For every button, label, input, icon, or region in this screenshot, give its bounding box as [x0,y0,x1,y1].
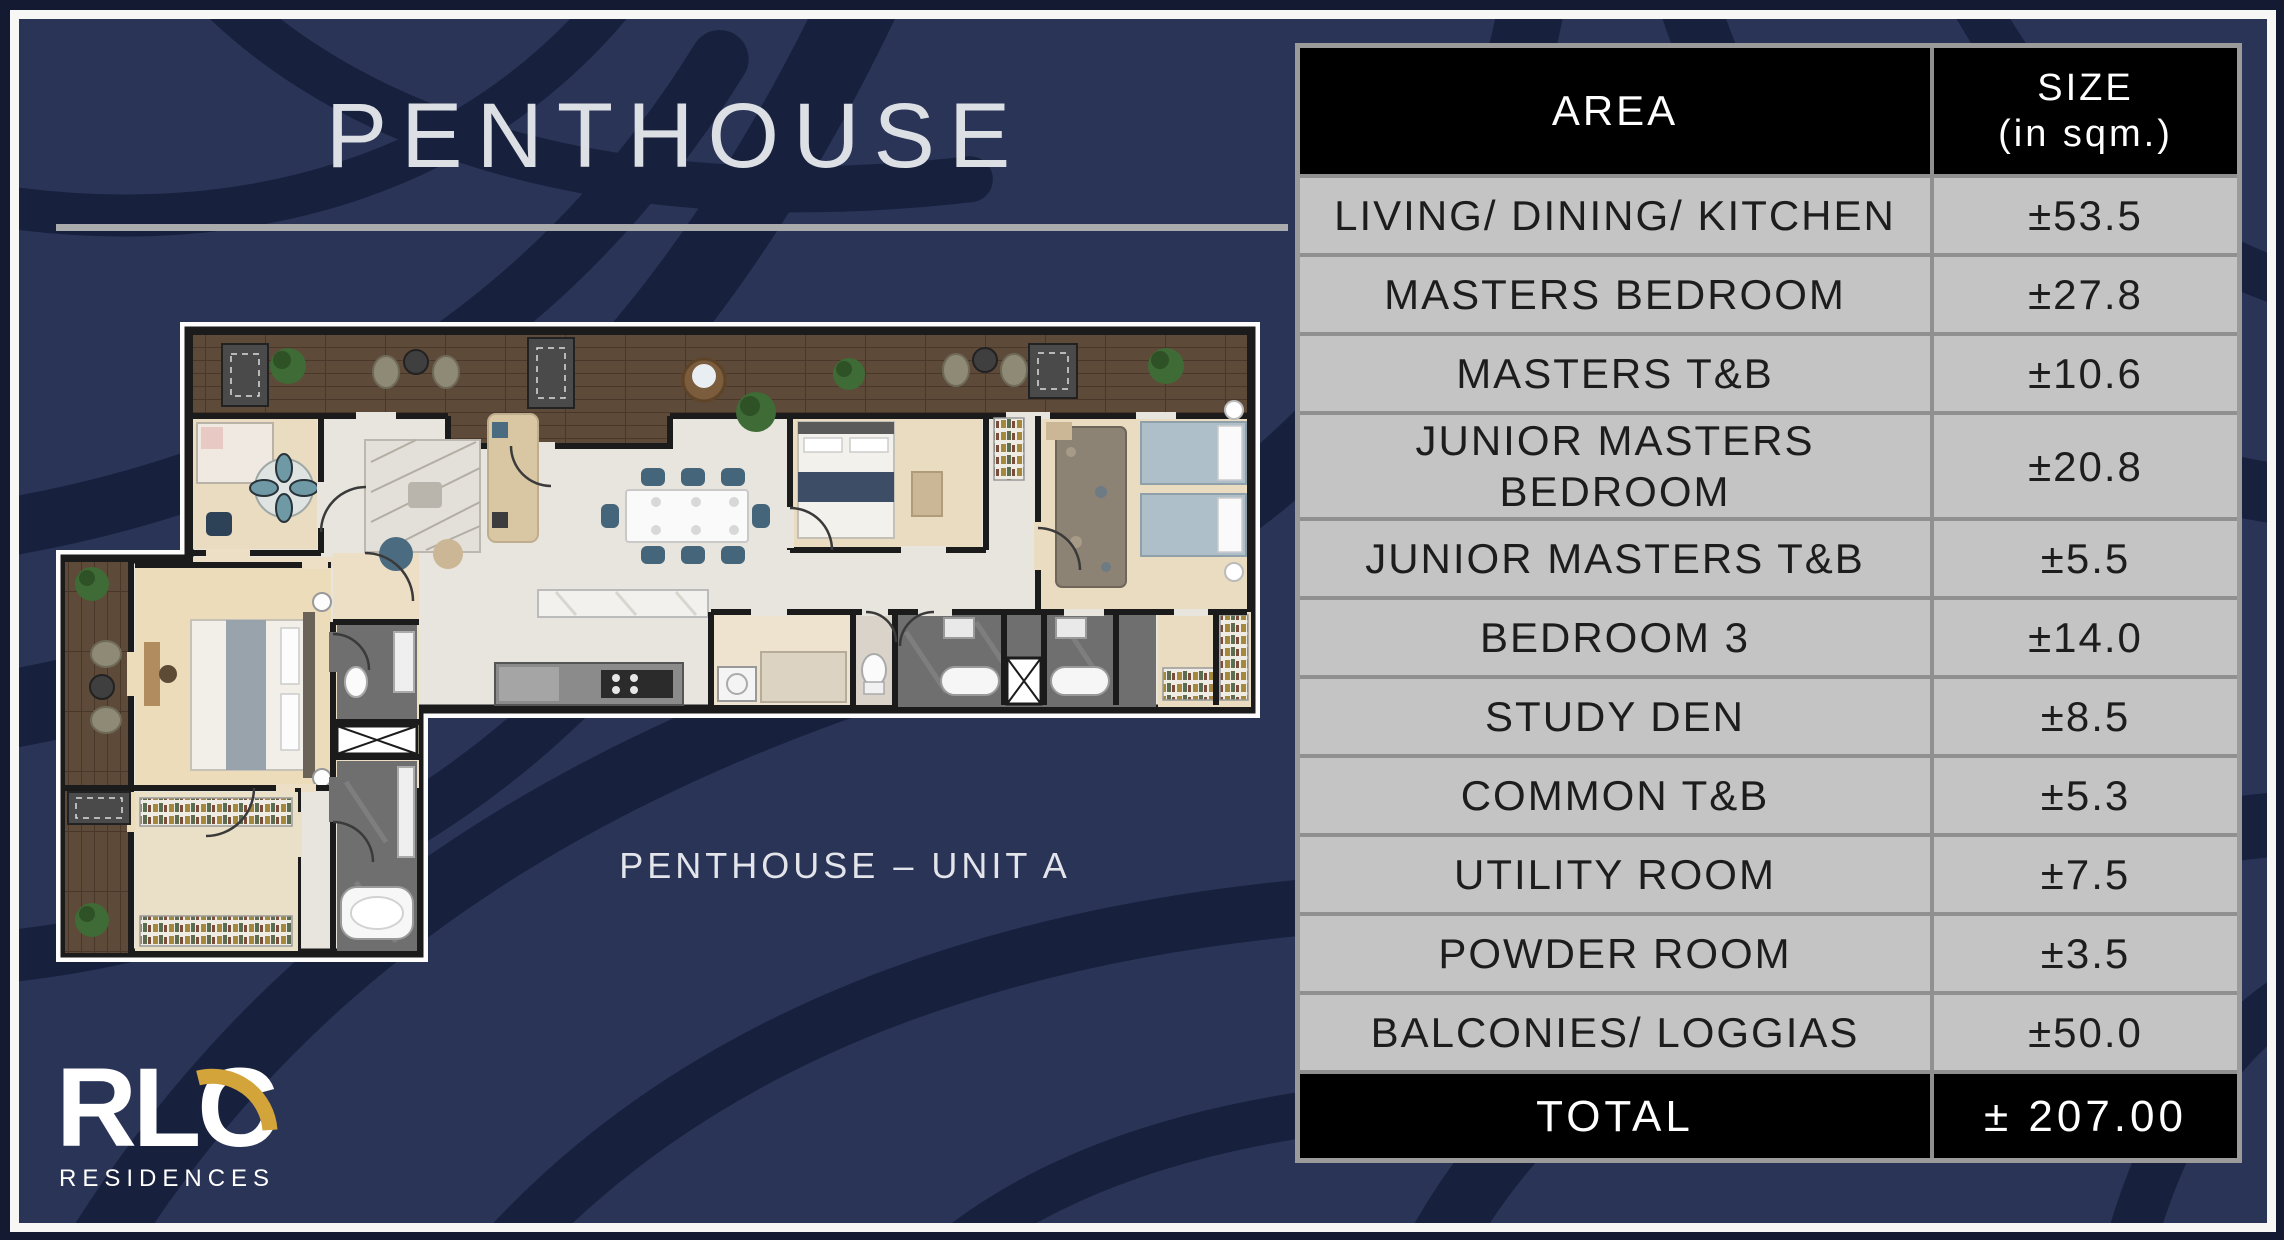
table-total-value: ± 207.00 [1934,1074,2237,1158]
table-header-area: AREA [1300,48,1930,174]
title-underline [56,224,1288,231]
table-row: STUDY DEN ±8.5 [1300,679,2237,754]
table-row: POWDER ROOM ±3.5 [1300,916,2237,991]
table-cell-area: JUNIOR MASTERS T&B [1300,521,1930,596]
table-cell-size: ±3.5 [1934,916,2237,991]
table-cell-size: ±5.3 [1934,758,2237,833]
table-cell-size: ±7.5 [1934,837,2237,912]
table-cell-area: LIVING/ DINING/ KITCHEN [1300,178,1930,253]
rlc-logo-text: RLC [56,1046,275,1158]
table-cell-area: COMMON T&B [1300,758,1930,833]
table-cell-size: ±5.5 [1934,521,2237,596]
basket-chair [683,359,725,401]
presentation-slide: PENTHOUSE [0,0,2284,1240]
table-row: UTILITY ROOM ±7.5 [1300,837,2237,912]
table-cell-area: JUNIOR MASTERS BEDROOM [1300,415,1930,517]
walk-in-closet [135,792,298,951]
table-cell-area: MASTERS T&B [1300,336,1930,411]
shaft [1007,658,1041,704]
table-row: MASTERS BEDROOM ±27.8 [1300,257,2237,332]
masters-bath [337,761,417,951]
table-cell-size: ±10.6 [1934,336,2237,411]
table-body: LIVING/ DINING/ KITCHEN ±53.5 MASTERS BE… [1300,178,2237,1070]
masters-bedroom [135,565,331,788]
junior-masters-bedroom [1041,401,1247,609]
table-cell-size: ±50.0 [1934,995,2237,1070]
table-total-row: TOTAL ± 207.00 [1300,1074,2237,1158]
table-row: BALCONIES/ LOGGIAS ±50.0 [1300,995,2237,1070]
table-cell-area: UTILITY ROOM [1300,837,1930,912]
page-title: PENTHOUSE [60,84,1290,189]
table-cell-area: POWDER ROOM [1300,916,1930,991]
table-cell-area: STUDY DEN [1300,679,1930,754]
table-cell-area: BEDROOM 3 [1300,600,1930,675]
bedroom-3 [790,419,982,547]
table-cell-size: ±14.0 [1934,600,2237,675]
table-row: BEDROOM 3 ±14.0 [1300,600,2237,675]
rlc-logo-mark: RLC [56,1046,306,1158]
table-row: JUNIOR MASTERS T&B ±5.5 [1300,521,2237,596]
table-row: COMMON T&B ±5.3 [1300,758,2237,833]
table-cell-size: ±27.8 [1934,257,2237,332]
table-cell-size: ±53.5 [1934,178,2237,253]
table-row: JUNIOR MASTERS BEDROOM ±20.8 [1300,415,2237,517]
rlc-logo-subtitle: RESIDENCES [59,1165,336,1193]
table-row: MASTERS T&B ±10.6 [1300,336,2237,411]
table-cell-size: ±20.8 [1934,415,2237,517]
table-cell-area: MASTERS BEDROOM [1300,257,1930,332]
table-row: LIVING/ DINING/ KITCHEN ±53.5 [1300,178,2237,253]
table-header-row: AREA SIZE (in sqm.) [1300,48,2237,174]
table-cell-size: ±8.5 [1934,679,2237,754]
table-total-label: TOTAL [1300,1074,1930,1158]
rlc-logo: RLC RESIDENCES [56,1046,336,1193]
table-header-size: SIZE (in sqm.) [1934,48,2237,174]
floor-plan-caption: PENTHOUSE – UNIT A [560,845,1130,887]
linen-closet [337,726,417,754]
table-cell-area: BALCONIES/ LOGGIAS [1300,995,1930,1070]
area-size-table: AREA SIZE (in sqm.) LIVING/ DINING/ KITC… [1295,43,2242,1163]
